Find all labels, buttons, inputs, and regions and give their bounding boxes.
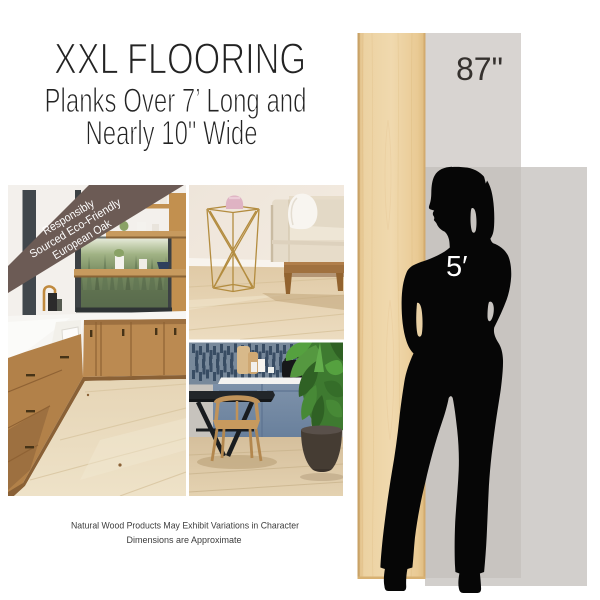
svg-text:Nearly 10" Wide: Nearly 10" Wide <box>86 115 258 153</box>
svg-text:5′: 5′ <box>446 251 468 283</box>
svg-text:XXL FLOORING: XXL FLOORING <box>54 35 306 84</box>
svg-text:Natural Wood Products May Exhi: Natural Wood Products May Exhibit Variat… <box>71 521 299 532</box>
svg-text:87": 87" <box>456 51 503 87</box>
svg-text:Dimensions are Approximate: Dimensions are Approximate <box>127 535 242 546</box>
